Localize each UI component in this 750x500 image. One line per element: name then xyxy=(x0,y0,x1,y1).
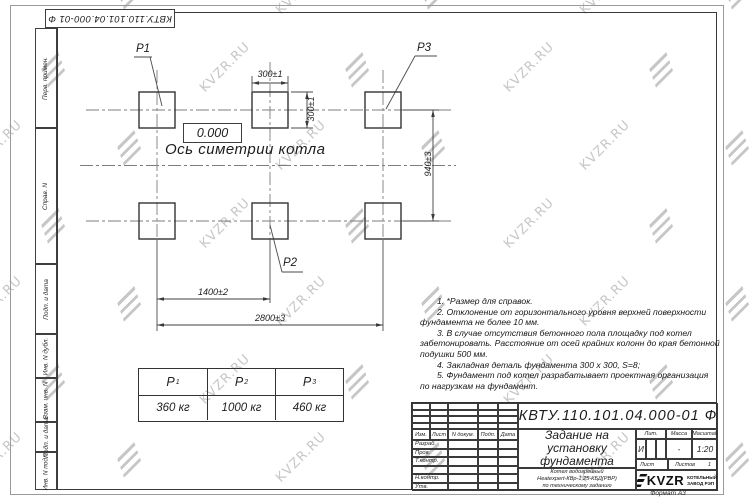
drawing-sheet: KVZR.RUKVZR.RUKVZR.RUKVZR.RUKVZR.RUKVZR.… xyxy=(0,0,750,500)
hdr-izm: Изм. xyxy=(412,429,430,440)
mass-value: - xyxy=(666,439,692,459)
scale-value: 1:20 xyxy=(692,439,718,459)
note-line: 2. Отклонение от горизонтального уровня … xyxy=(420,307,714,318)
doc-number: КВТУ.110.101.04.000-01 Ф xyxy=(518,403,718,429)
note-line: забетонировать. Расстояние от осей крайн… xyxy=(420,338,714,349)
technical-notes: 1. *Размер для справок. 2. Отклонение от… xyxy=(420,296,714,391)
revision-table-header: Изм. Лист N докум. Подп. Дата xyxy=(412,429,518,440)
loads-header-p1: Р1 xyxy=(139,369,207,395)
hdr-podp: Подп. xyxy=(478,429,498,440)
hdr-list: Лист xyxy=(430,429,448,440)
symmetry-axis-label: Ось симетрии котла xyxy=(165,141,325,158)
dim-block-width: 300±1 xyxy=(247,69,293,79)
hdr-data: Дата xyxy=(498,429,518,440)
loads-table: Р1 Р2 Р3 360 кг 1000 кг 460 кг xyxy=(138,368,344,422)
lit-cell-2 xyxy=(646,439,656,459)
row-tkontr: Т.контр. xyxy=(412,457,448,466)
sheet-label: Лист xyxy=(636,459,668,470)
dim-block-height: 300±1 xyxy=(306,91,316,127)
row-nkontr: Н.контр. xyxy=(412,474,448,483)
document-title: Задание на установку фундамента xyxy=(518,429,636,468)
point-label-p2: Р2 xyxy=(283,257,297,269)
kvzr-logo-icon xyxy=(636,474,647,487)
loads-value-p1: 360 кг xyxy=(139,395,207,420)
note-line: 5. Фундамент под котел разрабатывает про… xyxy=(420,370,714,381)
loads-value-p2: 1000 кг xyxy=(207,395,275,420)
signature-rows: Разраб. Пров. Т.контр. Н.контр. Утв. xyxy=(412,440,518,491)
point-label-p3: Р3 xyxy=(417,42,431,54)
dim-total-span: 2800±3 xyxy=(246,313,294,323)
lit-cell-3 xyxy=(656,439,666,459)
hdr-ndok: N докум. xyxy=(448,429,478,440)
dim-row-spacing: 940±3 xyxy=(423,143,433,185)
row-prov: Пров. xyxy=(412,449,448,458)
loads-header-p3: Р3 xyxy=(275,369,343,395)
row-utv: Утв. xyxy=(412,483,448,492)
point-label-p1: Р1 xyxy=(136,43,150,55)
sheets-cell: Листов 1 xyxy=(668,459,718,470)
note-line: фундамента не более 10 мм. xyxy=(420,317,714,328)
note-line: подушки 500 мм. xyxy=(420,349,714,360)
format-label: Формат А3 xyxy=(618,490,718,497)
company-logo-cell: KVZR КОТЕЛЬНЫЙ ЗАВОД РЭП xyxy=(636,470,718,491)
note-line: 1. *Размер для справок. xyxy=(420,296,714,307)
revision-table-extension xyxy=(412,403,518,429)
kvzr-logo-text: KVZR xyxy=(647,473,684,488)
lit-value: И xyxy=(636,439,646,459)
loads-value-p3: 460 кг xyxy=(275,395,343,420)
mass-label: Масса xyxy=(666,429,692,439)
scale-label: Масштаб xyxy=(692,429,718,439)
note-line: 4. Закладная деталь фундамента 300 x 300… xyxy=(420,360,714,371)
company-name: КОТЕЛЬНЫЙ ЗАВОД РЭП xyxy=(687,475,717,486)
note-line: по нагрузкам на фундамент. xyxy=(420,381,714,392)
row-razrab: Разраб. xyxy=(412,440,448,449)
product-name: Котел водогрейный Heatexpert-КВр-1,25-КБ… xyxy=(518,468,636,491)
title-block: Изм. Лист N докум. Подп. Дата Разраб. Пр… xyxy=(411,402,717,490)
lit-label: Лит. xyxy=(636,429,666,439)
elevation-mark: 0.000 xyxy=(183,123,242,143)
dim-col-spacing: 1400±2 xyxy=(189,287,237,297)
row-blank xyxy=(412,466,448,475)
note-line: 3. В случае отсутствия бетонного пола пл… xyxy=(420,328,714,339)
loads-header-p2: Р2 xyxy=(207,369,275,395)
